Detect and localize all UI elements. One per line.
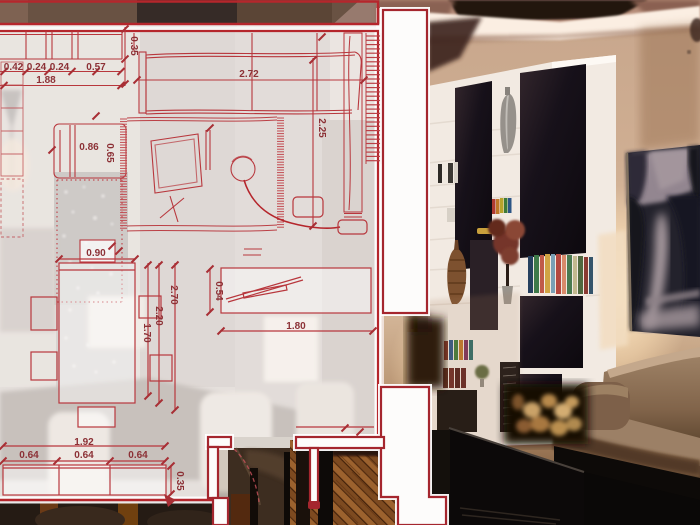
svg-text:0.64: 0.64 — [128, 450, 148, 461]
svg-text:2.25: 2.25 — [316, 118, 327, 138]
svg-text:0.24: 0.24 — [50, 62, 70, 73]
svg-text:0.42: 0.42 — [4, 62, 24, 73]
svg-text:2.70: 2.70 — [168, 285, 179, 305]
svg-text:0.64: 0.64 — [19, 450, 39, 461]
svg-text:1.70: 1.70 — [141, 323, 152, 343]
svg-text:1.92: 1.92 — [74, 437, 94, 448]
svg-text:1.88: 1.88 — [36, 75, 56, 86]
svg-text:0.64: 0.64 — [74, 450, 94, 461]
svg-text:0.57: 0.57 — [86, 62, 106, 73]
svg-text:0.86: 0.86 — [79, 142, 99, 153]
svg-text:0.35: 0.35 — [174, 471, 185, 491]
svg-text:0.24: 0.24 — [27, 62, 47, 73]
svg-text:2.72: 2.72 — [239, 69, 259, 80]
svg-text:0.54: 0.54 — [213, 281, 224, 301]
svg-text:0.35: 0.35 — [128, 36, 139, 56]
svg-text:0.65: 0.65 — [104, 143, 115, 163]
svg-text:0.90: 0.90 — [86, 248, 106, 259]
svg-text:1.80: 1.80 — [286, 321, 306, 332]
svg-text:2.20: 2.20 — [153, 306, 164, 326]
